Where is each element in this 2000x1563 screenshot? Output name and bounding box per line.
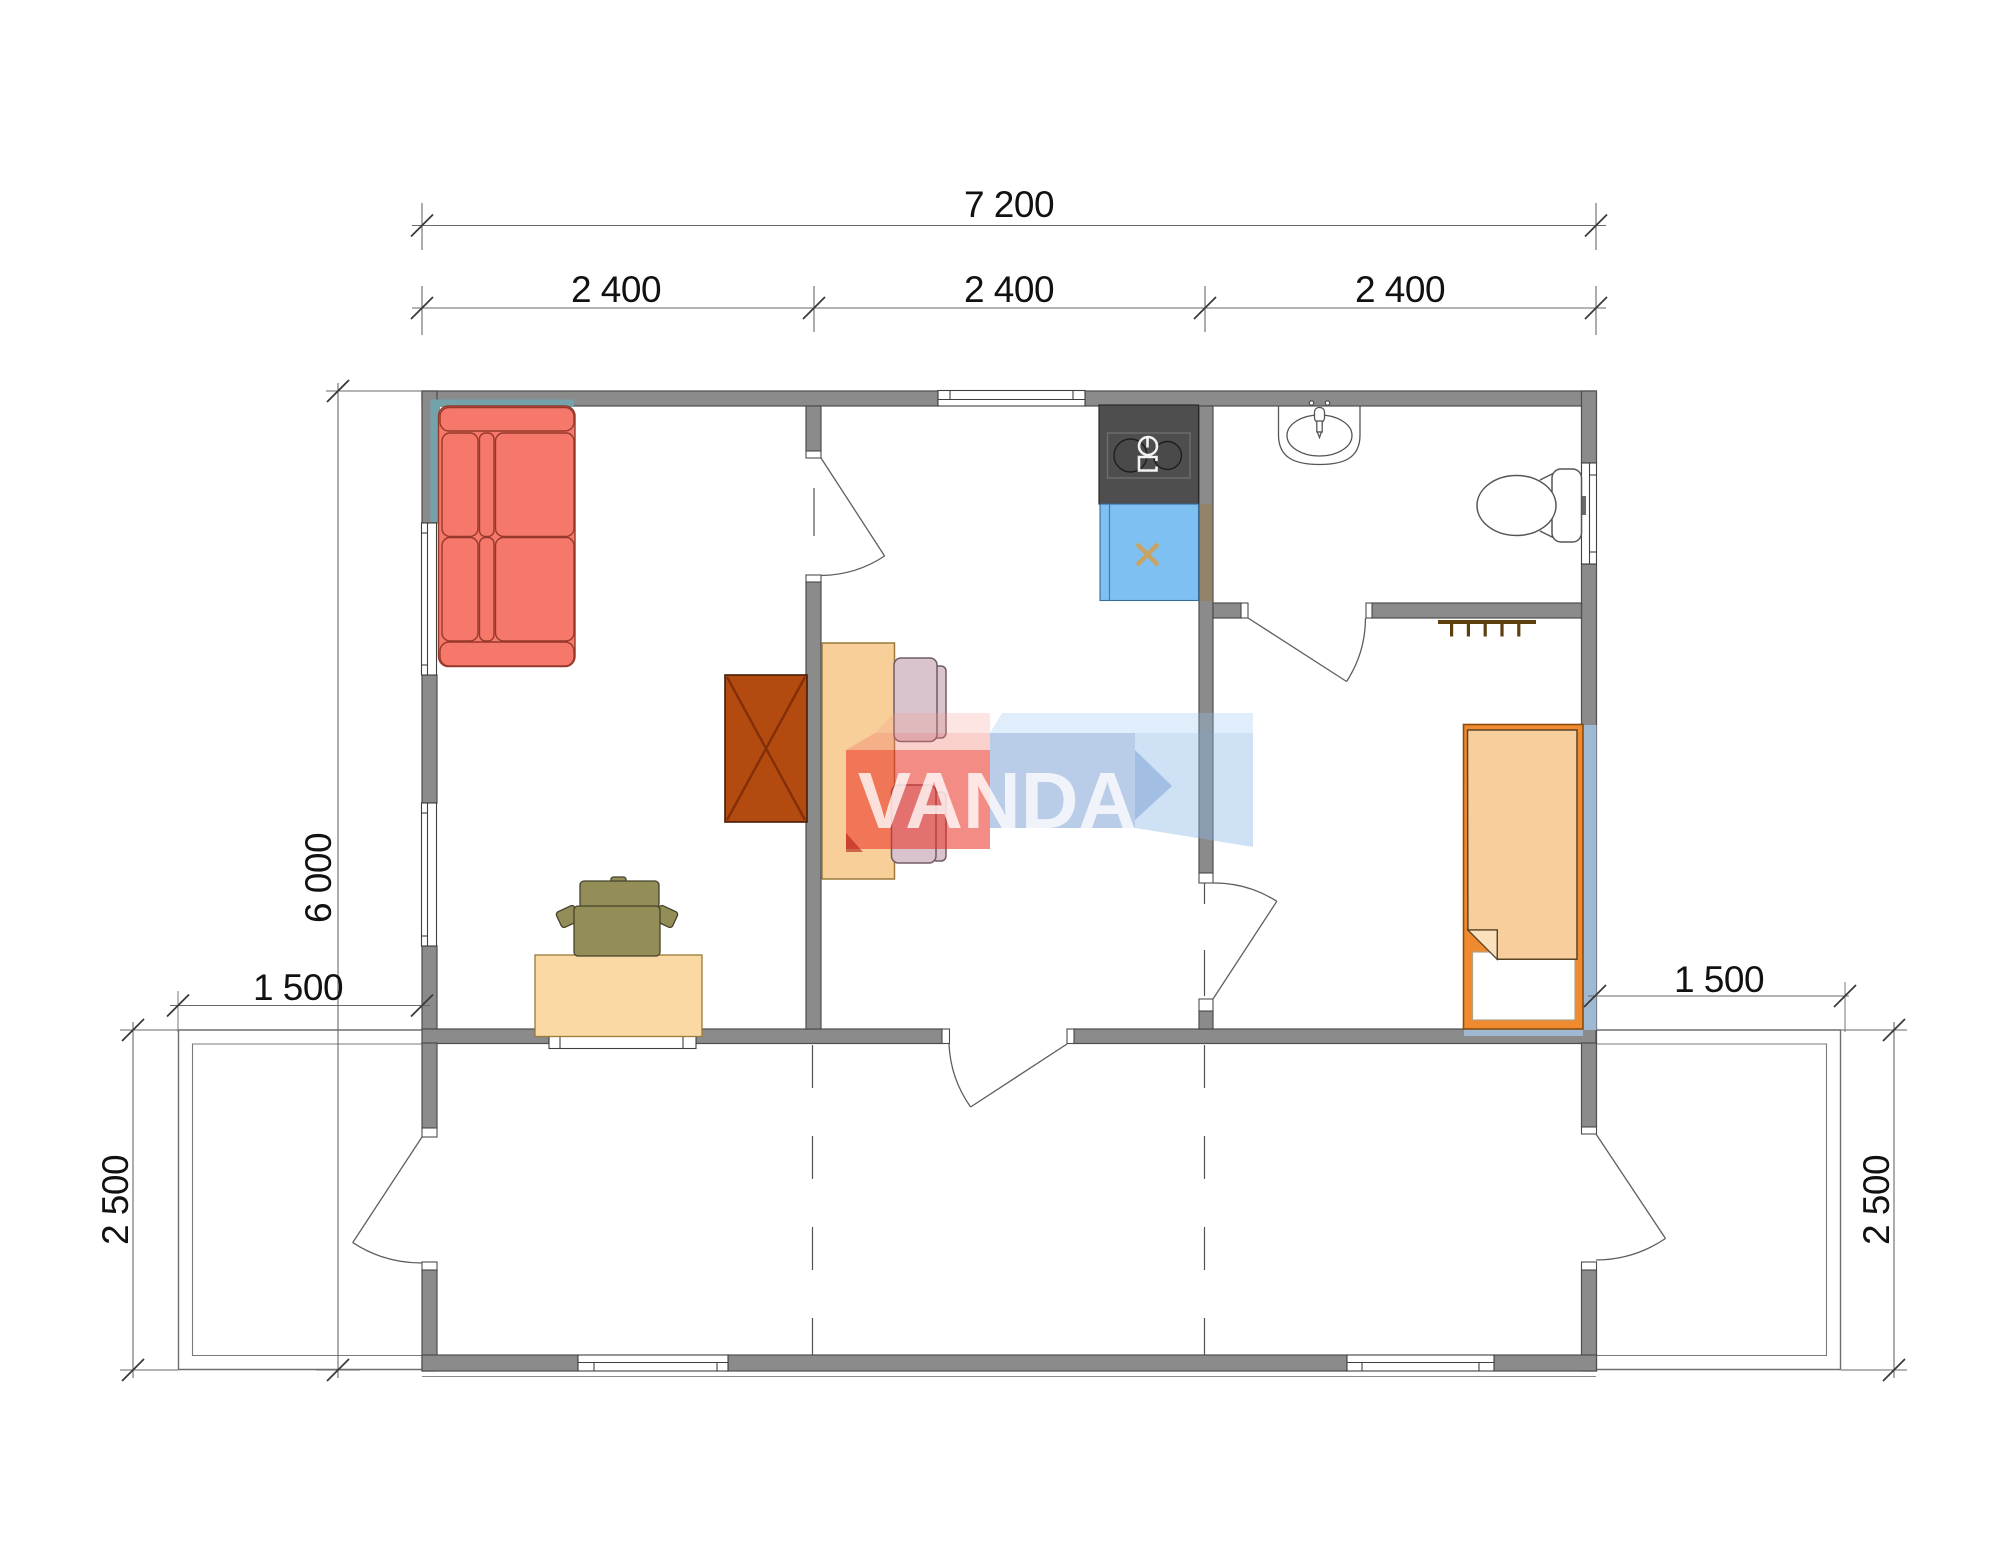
svg-text:2 500: 2 500 bbox=[1856, 1155, 1897, 1245]
svg-text:1 500: 1 500 bbox=[1674, 959, 1764, 1000]
svg-text:1 500: 1 500 bbox=[253, 967, 343, 1008]
svg-text:2 400: 2 400 bbox=[964, 269, 1054, 310]
svg-text:6 000: 6 000 bbox=[298, 833, 339, 923]
svg-text:2 400: 2 400 bbox=[571, 269, 661, 310]
svg-text:2 400: 2 400 bbox=[1355, 269, 1445, 310]
svg-text:2 500: 2 500 bbox=[95, 1155, 136, 1245]
svg-text:7 200: 7 200 bbox=[964, 184, 1054, 225]
svg-text:VANDA: VANDA bbox=[858, 756, 1137, 845]
